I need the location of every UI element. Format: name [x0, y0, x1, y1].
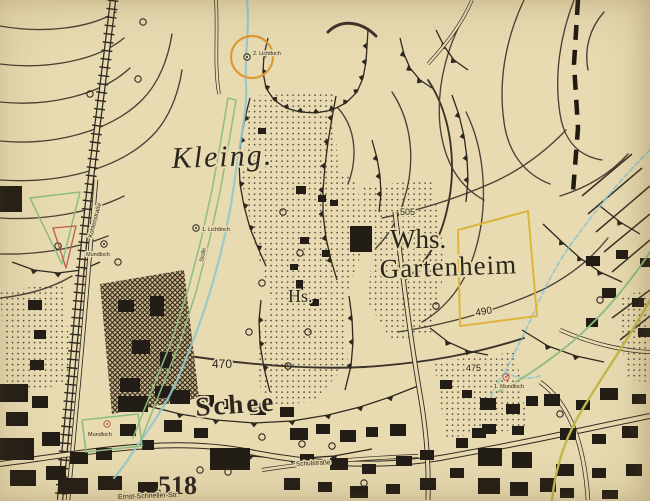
- mine-label-mundloch1: 1. Mundloch: [494, 384, 524, 390]
- mundloch-symbol-lower: [104, 421, 110, 427]
- mine-label-lichtloch1: 1. Lichtloch: [202, 227, 230, 233]
- mundloch-symbol-left: [101, 241, 107, 247]
- topographic-map: Kleing. Whs. Gartenheim Hs. Schee 518 50…: [0, 0, 650, 501]
- label-kleingarten: Kleing.: [170, 138, 274, 175]
- mine-label-mundloch-lower: Mundloch: [88, 432, 112, 438]
- map-canvas: Kleing. Whs. Gartenheim Hs. Schee 518 50…: [0, 0, 650, 501]
- contour-label-470: 470: [212, 357, 232, 371]
- street-label-schulstrasse: Schulstraße: [296, 459, 331, 468]
- gartenheim-building: [350, 226, 372, 252]
- mine-label-mundloch-left: Mundloch: [86, 252, 110, 258]
- contour-label-475: 475: [466, 363, 481, 373]
- shaft-marker-orange-circle: [231, 36, 273, 78]
- mine-label-stolln: Stolln: [199, 248, 208, 263]
- contour-label-505: 505: [400, 207, 415, 217]
- label-whs: Whs.: [390, 224, 446, 254]
- label-haus-abbr: Hs.: [288, 286, 313, 306]
- boundary-line: [573, 0, 578, 192]
- label-schee: Schee: [194, 386, 277, 422]
- lichtloch1-symbol: [193, 225, 199, 231]
- mine-label-lichtloch2: 2. Lichtloch: [253, 51, 281, 57]
- contour-label-490: 490: [475, 305, 494, 319]
- label-gartenheim: Gartenheim: [379, 249, 517, 284]
